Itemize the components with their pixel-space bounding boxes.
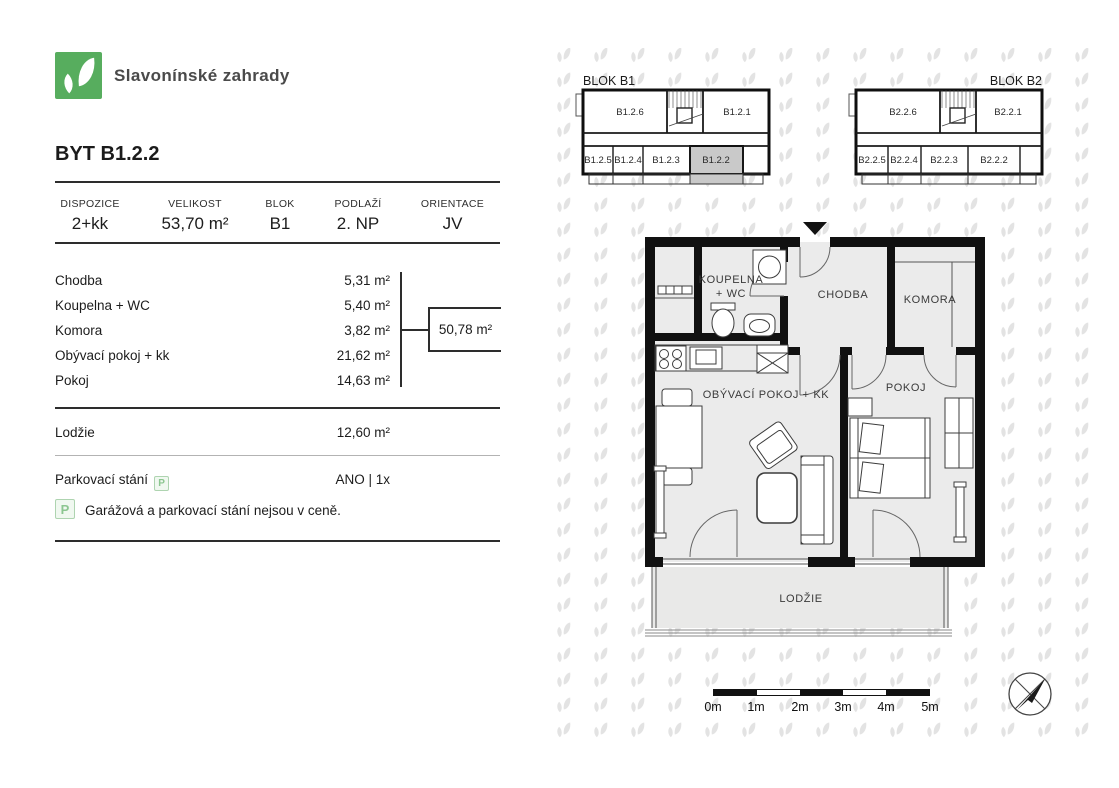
leaf-motif xyxy=(1074,623,1089,636)
leaf-motif xyxy=(778,123,793,136)
leaf-motif xyxy=(1074,498,1089,511)
leaf-motif xyxy=(1074,248,1089,261)
leaf-motif xyxy=(556,448,571,461)
leaf-motif xyxy=(593,523,608,536)
divider xyxy=(55,407,500,409)
leaf-motif xyxy=(556,48,571,61)
entrance-arrow-icon xyxy=(803,222,827,235)
leaf-motif xyxy=(1037,348,1052,361)
leaf-motif xyxy=(1037,598,1052,611)
leaf-motif xyxy=(704,673,719,686)
summary-label: ORIENTACE xyxy=(405,198,500,210)
leaf-motif xyxy=(778,148,793,161)
scale-segment xyxy=(757,690,800,695)
leaf-motif xyxy=(556,698,571,711)
leaf-motif xyxy=(593,723,608,736)
leaf-motif xyxy=(926,648,941,661)
leaf-motif xyxy=(852,48,867,61)
leaf-motif xyxy=(1074,598,1089,611)
leaf-motif xyxy=(1074,398,1089,411)
leaf-motif xyxy=(630,198,645,211)
leaf-motif xyxy=(1037,448,1052,461)
leaf-motif xyxy=(556,648,571,661)
scale-segment xyxy=(800,690,843,695)
leaf-motif xyxy=(593,448,608,461)
summary-value: 2+kk xyxy=(55,214,125,234)
leaf-motif xyxy=(1074,423,1089,436)
leaf-motif xyxy=(556,423,571,436)
summary-label: PODLAŽÍ xyxy=(318,198,398,210)
leaf-motif xyxy=(1037,248,1052,261)
leaf-motif xyxy=(1000,523,1015,536)
unit-label: B2.2.3 xyxy=(930,155,957,166)
nightstand xyxy=(848,398,872,416)
leaf-motif xyxy=(1074,673,1089,686)
divider-light xyxy=(55,455,500,456)
leaf-motif xyxy=(1000,323,1015,336)
summary-label: BLOK xyxy=(250,198,310,210)
leaf-motif xyxy=(667,698,682,711)
parking-icon: P xyxy=(154,476,169,491)
leaf-motif xyxy=(815,148,830,161)
label-komora: KOMORA xyxy=(904,294,957,306)
leaf-motif xyxy=(1037,373,1052,386)
leaf-motif xyxy=(963,48,978,61)
room-area: 5,40 m² xyxy=(344,298,390,313)
dishwasher xyxy=(757,345,788,373)
scale-label: 4m xyxy=(868,700,904,714)
summary-value: B1 xyxy=(250,214,310,234)
leaf-motif xyxy=(1074,648,1089,661)
scale-segment xyxy=(714,690,757,695)
leaf-motif xyxy=(556,323,571,336)
radiator xyxy=(956,484,964,540)
leaf-motif xyxy=(815,648,830,661)
coffee-table xyxy=(757,473,797,523)
leaf-motif xyxy=(741,673,756,686)
kitchen xyxy=(655,345,788,373)
room-label: Komora xyxy=(55,323,102,338)
leaf-motif xyxy=(556,123,571,136)
leaf-motif xyxy=(556,98,571,111)
leaf-motif xyxy=(963,723,978,736)
leaf-motif xyxy=(704,198,719,211)
summary-label: DISPOZICE xyxy=(55,198,125,210)
unit-label: B1.2.5 xyxy=(584,155,611,166)
leaf-motif xyxy=(1074,323,1089,336)
block-b1-diagram: BLOK B1 B1.2.6 B1.2.1 B1.2.5 B1.2.4 B1.2… xyxy=(575,68,775,193)
leaf-motif xyxy=(778,98,793,111)
leaf-motif xyxy=(963,698,978,711)
sofa xyxy=(801,456,833,544)
leaf-motif xyxy=(1037,273,1052,286)
room-row: Komora 3,82 m² xyxy=(55,323,390,348)
leaf-motif xyxy=(778,48,793,61)
parking-note-icon-wrap: P xyxy=(55,499,75,519)
leaf-motif xyxy=(1037,573,1052,586)
leaf-motif xyxy=(1000,448,1015,461)
block-b1-highlight-lodge xyxy=(690,174,743,184)
leaf-motif xyxy=(1000,373,1015,386)
label-koupelna-2: + WC xyxy=(716,288,746,300)
room-area: 14,63 m² xyxy=(337,373,390,388)
leaf-motif xyxy=(556,198,571,211)
leaf-motif xyxy=(852,723,867,736)
leaf-motif xyxy=(926,673,941,686)
leaf-motif xyxy=(1037,473,1052,486)
parking-row: Parkovací stáníP ANO | 1x xyxy=(55,472,390,497)
parking-label: Parkovací stání xyxy=(55,472,148,487)
room-label: Obývací pokoj + kk xyxy=(55,348,169,363)
leaf-motif xyxy=(1074,548,1089,561)
label-koupelna: KOUPELNA xyxy=(699,274,764,286)
leaf-motif xyxy=(1037,623,1052,636)
room-label: Koupelna + WC xyxy=(55,298,150,313)
room-row: Obývací pokoj + kk 21,62 m² xyxy=(55,348,390,373)
leaf-motif xyxy=(556,598,571,611)
leaf-motif xyxy=(1074,448,1089,461)
leaf-motif xyxy=(1000,623,1015,636)
leaf-motif xyxy=(556,498,571,511)
divider xyxy=(55,540,500,542)
interior-total-value: 50,78 m² xyxy=(439,322,492,337)
leaf-motif xyxy=(593,473,608,486)
scale-label: 2m xyxy=(782,700,818,714)
leaf-motif xyxy=(778,648,793,661)
leaf-motif xyxy=(556,548,571,561)
room-row: Pokoj 14,63 m² xyxy=(55,373,390,398)
leaf-motif xyxy=(963,673,978,686)
room-row: Chodba 5,31 m² xyxy=(55,273,390,298)
leaf-motif xyxy=(963,648,978,661)
leaf-motif xyxy=(926,48,941,61)
leaf-motif xyxy=(667,198,682,211)
leaf-motif xyxy=(778,723,793,736)
leaf-motif xyxy=(556,623,571,636)
leaf-motif xyxy=(556,73,571,86)
leaf-motif xyxy=(1037,648,1052,661)
leaf-motif xyxy=(741,723,756,736)
summary-col-podlazi: PODLAŽÍ 2. NP xyxy=(318,198,398,234)
block-b2-title: BLOK B2 xyxy=(990,74,1042,88)
interior-total-box: 50,78 m² xyxy=(428,307,501,352)
leaf-motif xyxy=(1000,298,1015,311)
scale-label: 0m xyxy=(695,700,731,714)
leaf-motif xyxy=(852,198,867,211)
parking-value: ANO | 1x xyxy=(335,472,390,487)
parking-note: Garážová a parkovací stání nejsou v ceně… xyxy=(85,503,341,518)
leaf-motif xyxy=(593,248,608,261)
unit-label: B2.2.5 xyxy=(858,155,885,166)
unit-label: B1.2.2 xyxy=(702,155,729,166)
leaf-motif xyxy=(1037,298,1052,311)
leaf-motif xyxy=(1037,498,1052,511)
leaf-motif xyxy=(593,198,608,211)
leaf-motif xyxy=(1000,573,1015,586)
leaf-motif xyxy=(556,523,571,536)
room-row: Koupelna + WC 5,40 m² xyxy=(55,298,390,323)
leaf-motif xyxy=(1074,573,1089,586)
label-chodba: CHODBA xyxy=(818,289,869,301)
brand-logo-leaf-icon xyxy=(55,52,102,99)
leaf-motif xyxy=(593,223,608,236)
scale-label: 3m xyxy=(825,700,861,714)
leaf-motif xyxy=(556,573,571,586)
leaf-motif xyxy=(1000,473,1015,486)
leaf-motif xyxy=(556,298,571,311)
divider xyxy=(55,181,500,183)
unit-label: B1.2.4 xyxy=(614,155,641,166)
leaf-motif xyxy=(704,723,719,736)
unit-label: B1.2.1 xyxy=(723,107,750,118)
lodzie-row: Lodžie 12,60 m² xyxy=(55,425,390,450)
leaf-motif xyxy=(1037,398,1052,411)
leaf-motif xyxy=(630,48,645,61)
summary-value: 53,70 m² xyxy=(140,214,250,234)
leaf-motif xyxy=(630,698,645,711)
unit-label: B2.2.6 xyxy=(889,107,916,118)
leaf-motif xyxy=(593,48,608,61)
leaf-motif xyxy=(815,48,830,61)
lodzie-label: Lodžie xyxy=(55,425,95,440)
leaf-motif xyxy=(630,673,645,686)
summary-value: JV xyxy=(405,214,500,234)
leaf-motif xyxy=(593,423,608,436)
leaf-motif xyxy=(1000,248,1015,261)
leaf-motif xyxy=(667,648,682,661)
leaf-motif xyxy=(1074,473,1089,486)
leaf-motif xyxy=(852,648,867,661)
leaf-motif xyxy=(815,173,830,186)
page-title: BYT B1.2.2 xyxy=(55,143,159,166)
leaf-motif xyxy=(593,648,608,661)
leaf-motif xyxy=(815,723,830,736)
divider xyxy=(55,242,500,244)
dining-table xyxy=(656,406,702,468)
room-area: 3,82 m² xyxy=(344,323,390,338)
unit-label: B1.2.3 xyxy=(652,155,679,166)
leaf-motif xyxy=(1074,348,1089,361)
leaf-motif xyxy=(593,373,608,386)
radiator xyxy=(656,468,664,536)
leaf-motif xyxy=(556,348,571,361)
leaf-motif xyxy=(815,123,830,136)
leaf-motif xyxy=(1000,498,1015,511)
leaf-motif xyxy=(1037,323,1052,336)
leaf-motif xyxy=(741,648,756,661)
leaf-motif xyxy=(1074,73,1089,86)
brand-name: Slavonínské zahrady xyxy=(114,66,290,86)
label-lodzie: LODŽIE xyxy=(779,592,822,605)
leaf-motif xyxy=(889,48,904,61)
leaf-motif xyxy=(556,273,571,286)
leaf-motif xyxy=(593,323,608,336)
leaf-motif xyxy=(1074,123,1089,136)
leaf-motif xyxy=(926,198,941,211)
leaf-motif xyxy=(556,248,571,261)
leaf-motif xyxy=(1074,173,1089,186)
summary-label: VELIKOST xyxy=(140,198,250,210)
leaf-motif xyxy=(778,173,793,186)
leaf-motif xyxy=(1037,48,1052,61)
scale-bar xyxy=(713,689,930,696)
leaf-motif xyxy=(1000,223,1015,236)
leaf-motif xyxy=(1074,698,1089,711)
leaf-motif xyxy=(1074,298,1089,311)
leaf-motif xyxy=(593,298,608,311)
toilet xyxy=(712,309,734,337)
leaf-motif xyxy=(778,198,793,211)
leaf-motif xyxy=(1074,523,1089,536)
leaf-motif xyxy=(667,48,682,61)
scale-segment xyxy=(886,690,929,695)
leaf-motif xyxy=(1000,548,1015,561)
parking-note-icon: P xyxy=(55,499,75,519)
label-pokoj: POKOJ xyxy=(886,382,926,394)
room-area: 21,62 m² xyxy=(337,348,390,363)
leaf-motif xyxy=(889,198,904,211)
leaf-motif xyxy=(1000,273,1015,286)
scale-label: 1m xyxy=(738,700,774,714)
leaf-motif xyxy=(1037,723,1052,736)
leaf-motif xyxy=(889,723,904,736)
leaf-motif xyxy=(1074,223,1089,236)
leaf-motif xyxy=(1037,198,1052,211)
leaf-motif xyxy=(593,348,608,361)
leaf-motif xyxy=(852,673,867,686)
unit-label: B2.2.1 xyxy=(994,107,1021,118)
leaf-motif xyxy=(667,673,682,686)
leaf-motif xyxy=(704,648,719,661)
leaf-motif xyxy=(1000,648,1015,661)
leaf-motif xyxy=(1037,223,1052,236)
leaf-motif xyxy=(1074,148,1089,161)
summary-col-velikost: VELIKOST 53,70 m² xyxy=(140,198,250,234)
floor-plan: KOUPELNA + WC CHODBA KOMORA OBÝVACÍ POKO… xyxy=(626,216,994,646)
leaf-motif xyxy=(889,648,904,661)
total-bracket-connector xyxy=(400,329,428,331)
leaf-motif xyxy=(556,173,571,186)
unit-label: B2.2.4 xyxy=(890,155,917,166)
leaf-motif xyxy=(1074,198,1089,211)
lodzie-area: 12,60 m² xyxy=(337,425,390,440)
leaf-motif xyxy=(556,148,571,161)
leaf-motif xyxy=(593,623,608,636)
block-b1-title: BLOK B1 xyxy=(583,74,635,88)
leaf-motif xyxy=(556,723,571,736)
summary-col-blok: BLOK B1 xyxy=(250,198,310,234)
leaf-motif xyxy=(593,498,608,511)
compass-north-icon xyxy=(1002,666,1058,722)
leaf-motif xyxy=(741,48,756,61)
radiator xyxy=(658,286,692,294)
unit-label: B2.2.2 xyxy=(980,155,1007,166)
summary-value: 2. NP xyxy=(318,214,398,234)
leaf-motif xyxy=(926,723,941,736)
scale-segment xyxy=(843,690,886,695)
leaf-motif xyxy=(667,723,682,736)
leaf-motif xyxy=(1074,723,1089,736)
leaf-motif xyxy=(1074,273,1089,286)
leaf-motif xyxy=(1037,423,1052,436)
leaf-motif xyxy=(593,698,608,711)
leaf-motif xyxy=(889,673,904,686)
leaf-motif xyxy=(556,398,571,411)
leaf-motif xyxy=(963,198,978,211)
chair xyxy=(662,389,692,406)
lodzie-railing xyxy=(645,630,952,636)
leaf-motif xyxy=(1000,598,1015,611)
leaf-motif xyxy=(593,598,608,611)
leaf-motif xyxy=(778,673,793,686)
leaf-motif xyxy=(815,673,830,686)
pillow xyxy=(859,462,883,493)
leaf-motif xyxy=(1037,548,1052,561)
parking-label-wrap: Parkovací stáníP xyxy=(55,472,169,491)
leaf-motif xyxy=(593,398,608,411)
leaf-motif xyxy=(556,373,571,386)
room-area: 5,31 m² xyxy=(344,273,390,288)
leaf-motif xyxy=(1000,723,1015,736)
leaf-motif xyxy=(593,548,608,561)
leaf-motif xyxy=(1037,523,1052,536)
leaf-motif xyxy=(556,223,571,236)
leaf-motif xyxy=(815,198,830,211)
apartment-datasheet: { "brand": { "name": "Slavonínské zahrad… xyxy=(0,0,1119,788)
unit-label: B1.2.6 xyxy=(616,107,643,118)
pillow xyxy=(859,423,883,454)
summary-col-dispozice: DISPOZICE 2+kk xyxy=(55,198,125,234)
block-b2-diagram: BLOK B2 B2.2.6 B2.2.1 B2.2.5 B2.2.4 B2.2… xyxy=(848,68,1048,193)
scale-label: 5m xyxy=(912,700,948,714)
leaf-motif xyxy=(593,673,608,686)
leaf-motif xyxy=(1074,98,1089,111)
leaf-motif xyxy=(556,473,571,486)
leaf-motif xyxy=(630,723,645,736)
room-label: Chodba xyxy=(55,273,102,288)
leaf-motif xyxy=(1074,48,1089,61)
leaf-motif xyxy=(630,648,645,661)
leaf-motif xyxy=(778,73,793,86)
label-obyvaci: OBÝVACÍ POKOJ + KK xyxy=(703,388,830,401)
summary-col-orientace: ORIENTACE JV xyxy=(405,198,500,234)
leaf-motif xyxy=(1000,423,1015,436)
leaf-motif xyxy=(815,73,830,86)
leaf-motif xyxy=(556,673,571,686)
leaf-motif xyxy=(593,273,608,286)
leaf-motif xyxy=(1000,198,1015,211)
leaf-motif xyxy=(593,573,608,586)
leaf-motif xyxy=(741,198,756,211)
leaf-motif xyxy=(1000,48,1015,61)
room-label: Pokoj xyxy=(55,373,89,388)
leaf-motif xyxy=(704,48,719,61)
leaf-motif xyxy=(1000,398,1015,411)
leaf-motif xyxy=(815,98,830,111)
leaf-motif xyxy=(1074,373,1089,386)
leaf-motif xyxy=(1000,348,1015,361)
